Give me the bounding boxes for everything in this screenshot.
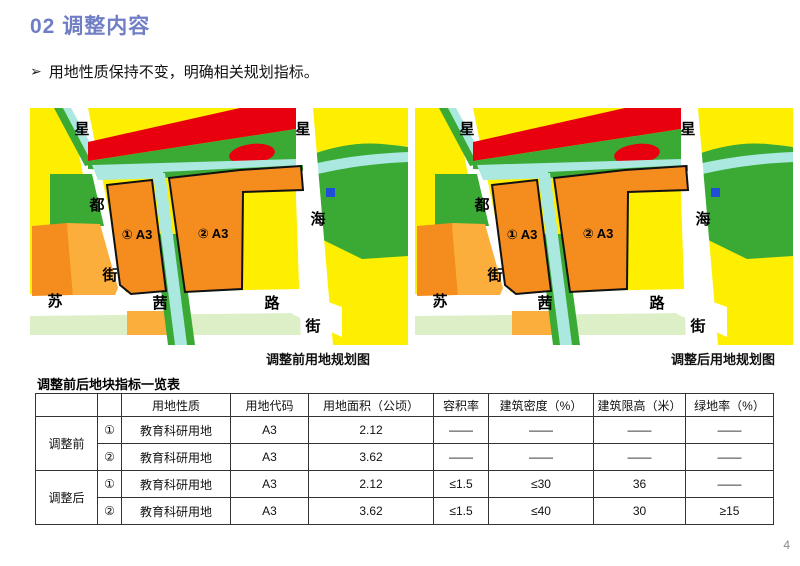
parcel-1-label: ① A3 (507, 227, 538, 242)
planning-map: ① A3 ② A3 星 都 街 星 海 苏 茜 路 街 (30, 108, 408, 345)
header-cell: 建筑密度（%） (489, 394, 594, 417)
west-orange-block (32, 223, 73, 296)
road-label: 星 (459, 121, 474, 138)
blue-square-marker (326, 188, 335, 197)
road-label: 星 (680, 121, 695, 138)
road-label: 海 (695, 210, 710, 228)
road-label: 都 (88, 197, 104, 214)
road-label: 都 (473, 197, 489, 214)
road-label: 街 (101, 266, 117, 284)
table-header-row: 用地性质 用地代码 用地面积（公顷） 容积率 建筑密度（%） 建筑限高（米） 绿… (36, 394, 774, 417)
road-label: 星 (295, 121, 310, 138)
road-label: 街 (689, 317, 705, 335)
parcel-2-label: ② A3 (198, 226, 229, 241)
bullet-text: 用地性质保持不变，明确相关规划指标。 (49, 61, 319, 82)
map-before: ① A3 ② A3 星 都 街 星 海 苏 茜 路 街 (30, 108, 408, 345)
road-label: 茜 (537, 294, 552, 312)
road-label: 茜 (152, 294, 167, 312)
indicators-table: 用地性质 用地代码 用地面积（公顷） 容积率 建筑密度（%） 建筑限高（米） 绿… (35, 393, 774, 525)
road-label: 街 (486, 266, 502, 284)
bullet-arrow-icon: ➢ (30, 63, 42, 80)
page-title: 02 调整内容 (30, 10, 150, 40)
map-after: ① A3 ② A3 星 都 街 星 海 苏 茜 路 街 (415, 108, 793, 345)
header-cell: 用地性质 (122, 394, 231, 417)
road-label: 路 (264, 294, 280, 312)
parcel-2-label: ② A3 (583, 226, 614, 241)
table-row: 调整前 ① 教育科研用地 A3 2.12 —— —— —— —— (36, 417, 774, 444)
road-label: 苏 (47, 292, 62, 310)
group-label-before: 调整前 (36, 417, 98, 471)
table-title: 调整前后地块指标一览表 (37, 374, 180, 393)
table-row: ② 教育科研用地 A3 3.62 —— —— —— —— (36, 444, 774, 471)
table-row: 调整后 ① 教育科研用地 A3 2.12 ≤1.5 ≤30 36 —— (36, 471, 774, 498)
road-label: 路 (649, 294, 665, 312)
west-orange-block (417, 223, 458, 296)
header-cell: 建筑限高（米） (594, 394, 686, 417)
header-cell (36, 394, 98, 417)
planning-map: ① A3 ② A3 星 都 街 星 海 苏 茜 路 街 (415, 108, 793, 345)
header-cell: 绿地率（%） (686, 394, 774, 417)
table-row: ② 教育科研用地 A3 3.62 ≤1.5 ≤40 30 ≥15 (36, 498, 774, 525)
bullet-line: ➢ 用地性质保持不变，明确相关规划指标。 (30, 61, 319, 82)
caption-map-after: 调整后用地规划图 (412, 349, 775, 368)
header-cell: 用地面积（公顷） (309, 394, 434, 417)
header-cell: 容积率 (434, 394, 489, 417)
road-label: 海 (310, 210, 325, 228)
parcel-1-label: ① A3 (122, 227, 153, 242)
caption-map-before: 调整前用地规划图 (30, 349, 370, 368)
header-cell: 用地代码 (231, 394, 309, 417)
road-label: 星 (74, 121, 89, 138)
road-label: 苏 (432, 292, 447, 310)
road-label: 街 (304, 317, 320, 335)
page-number: 4 (783, 538, 790, 552)
group-label-after: 调整后 (36, 471, 98, 525)
header-cell (98, 394, 122, 417)
blue-square-marker (711, 188, 720, 197)
